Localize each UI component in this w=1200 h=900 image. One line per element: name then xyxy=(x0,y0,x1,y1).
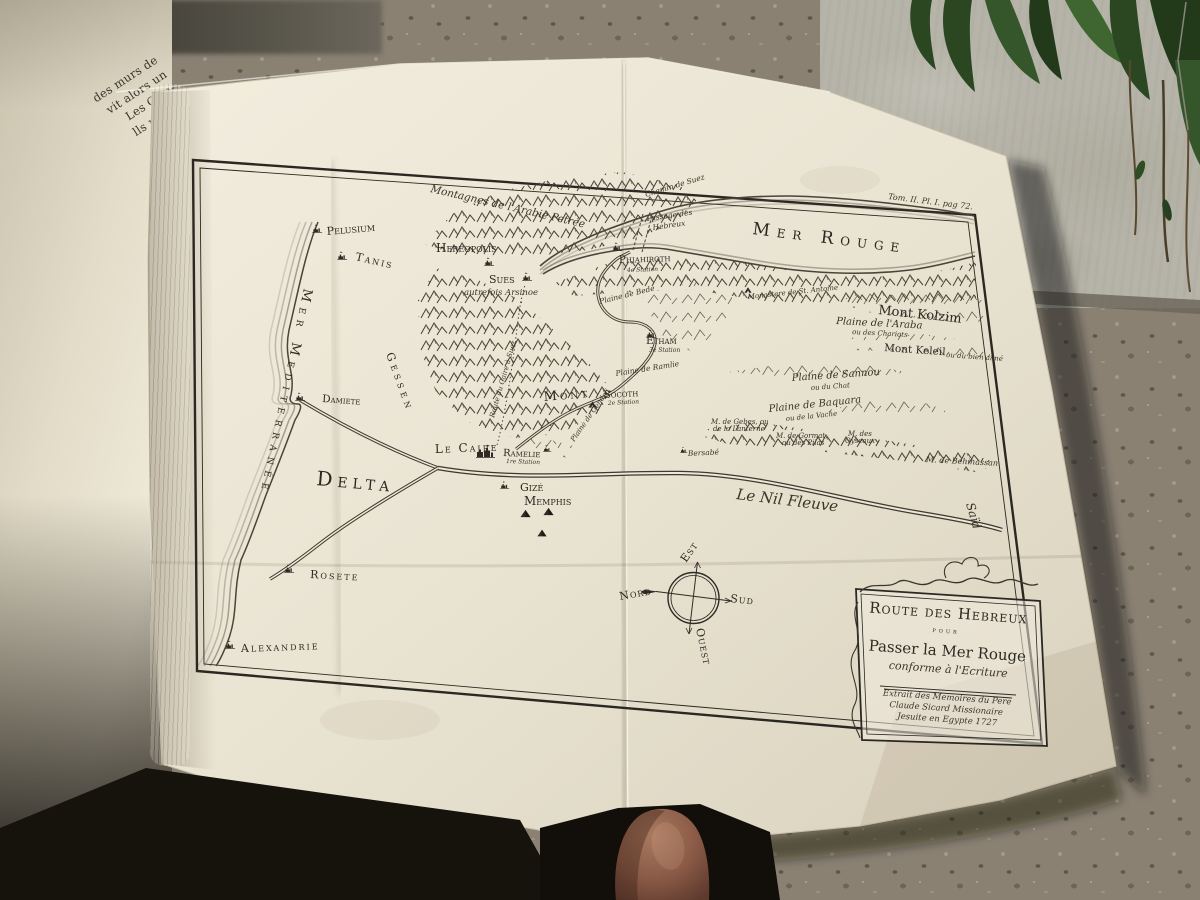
label-gormat-2: ou des Pilas xyxy=(782,439,825,447)
label-memphis: Memphis xyxy=(524,494,571,508)
label-etham: Etham xyxy=(646,335,677,347)
label-alexandrie: Alexandrie xyxy=(240,639,320,655)
label-hereopolis: Hereopolis xyxy=(436,241,497,255)
photo-scene: des murs devit alors unLes Com-lls remar… xyxy=(0,0,1200,900)
label-arsinoe: autrefois Arsinoe xyxy=(464,288,538,298)
cartouche-title-line2: pour xyxy=(932,625,960,636)
compass-sud-label: Sud xyxy=(730,592,755,607)
label-phiahiroth: Phiahiroth xyxy=(619,252,671,266)
label-le-caire: Le Caire xyxy=(435,440,499,456)
label-phiahiroth-station: 4e Station xyxy=(626,266,659,274)
label-sues: Sues xyxy=(489,273,515,286)
label-gize: Gizé xyxy=(520,481,544,494)
label-rosete: Rosete xyxy=(310,568,360,584)
label-ramelie-station: 1re Station xyxy=(506,458,540,466)
map-plate-photo: Tom. II. Pl. I. pag 72.Mer RougeMer Medi… xyxy=(0,0,1200,900)
label-bersabe: Bersabé xyxy=(687,447,720,458)
label-oyseaux-2: Oyseaux xyxy=(845,437,875,445)
label-etham-station: 3e Station xyxy=(649,347,680,354)
label-gebes-2: de la Lanterne xyxy=(713,425,765,433)
